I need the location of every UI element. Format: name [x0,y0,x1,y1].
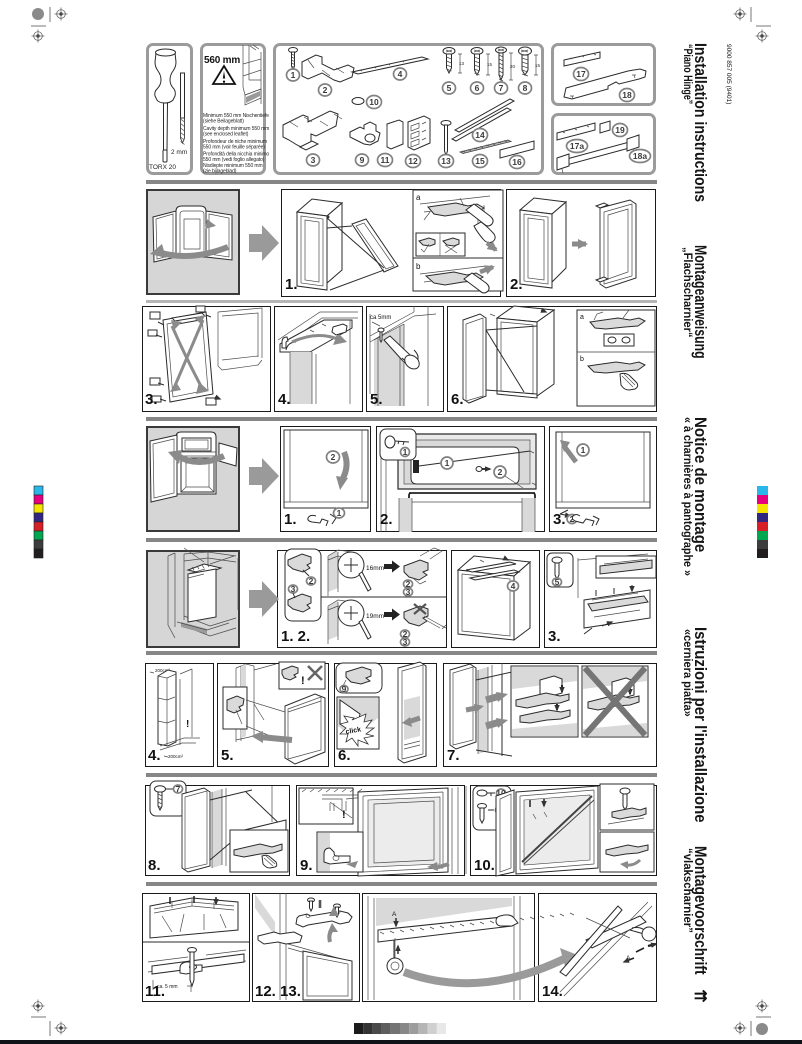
svg-text:3: 3 [406,587,411,597]
svg-text:A: A [392,911,397,918]
svg-text:9: 9 [360,155,365,165]
svg-text:b: b [580,356,584,363]
svg-text:7: 7 [176,784,181,794]
svg-text:550 mm (voir feuille séparée): 550 mm (voir feuille séparée) [203,145,265,151]
svg-text:18a: 18a [633,151,647,161]
svg-text:16: 16 [512,157,522,167]
svg-text:1: 1 [337,508,342,518]
svg-text:14: 14 [475,130,485,140]
svg-text:(siehe Beilageblatt): (siehe Beilageblatt) [203,119,244,125]
svg-text:!: ! [342,809,346,821]
svg-text:10: 10 [369,97,379,107]
svg-text:a: a [416,193,421,202]
svg-text:(see enclosed leaflet): (see enclosed leaflet) [203,132,249,138]
svg-text:ca 5mm: ca 5mm [370,315,391,321]
svg-text:16mm: 16mm [366,565,384,572]
svg-text:!: ! [186,719,189,730]
svg-text:19: 19 [615,125,625,135]
svg-text:3: 3 [311,155,316,165]
svg-text:2: 2 [309,576,314,586]
svg-text:15: 15 [535,63,541,68]
svg-text:2: 2 [323,85,328,95]
svg-text:4: 4 [398,69,403,79]
svg-text:(zie bijlageblad): (zie bijlageblad) [203,169,237,175]
svg-text:1: 1 [291,70,296,80]
svg-text:17: 17 [576,69,586,79]
svg-text:2 mm: 2 mm [171,149,187,156]
svg-text:15: 15 [487,62,493,67]
svg-text:13: 13 [441,156,451,166]
svg-text:12: 12 [408,156,418,166]
svg-text:19mm: 19mm [366,613,384,620]
svg-text:3: 3 [291,584,296,594]
svg-text:1: 1 [445,458,450,468]
svg-text:a: a [580,314,584,321]
svg-text:3: 3 [403,637,408,647]
svg-text:17a: 17a [570,141,584,151]
svg-text:20: 20 [510,64,516,69]
svg-text:560 mm: 560 mm [204,55,240,66]
svg-text:!: ! [301,675,305,687]
svg-text:5: 5 [447,83,452,93]
svg-text:7: 7 [499,83,504,93]
svg-text:2: 2 [498,467,503,477]
svg-text:18: 18 [622,90,632,100]
svg-text:6: 6 [475,83,480,93]
svg-text:1: 1 [403,447,408,457]
svg-text:2: 2 [331,452,336,462]
svg-text:1: 1 [581,445,586,455]
svg-text:b: b [416,262,421,271]
svg-text:15: 15 [475,156,485,166]
svg-text:200cm²: 200cm² [168,754,184,759]
svg-text:9: 9 [342,684,347,694]
svg-text:8: 8 [523,83,528,93]
svg-text:13: 13 [459,61,465,66]
svg-text:11: 11 [381,155,390,165]
svg-text:TORX 20: TORX 20 [149,164,176,171]
svg-text:4: 4 [511,581,516,591]
svg-text:5: 5 [555,577,560,587]
